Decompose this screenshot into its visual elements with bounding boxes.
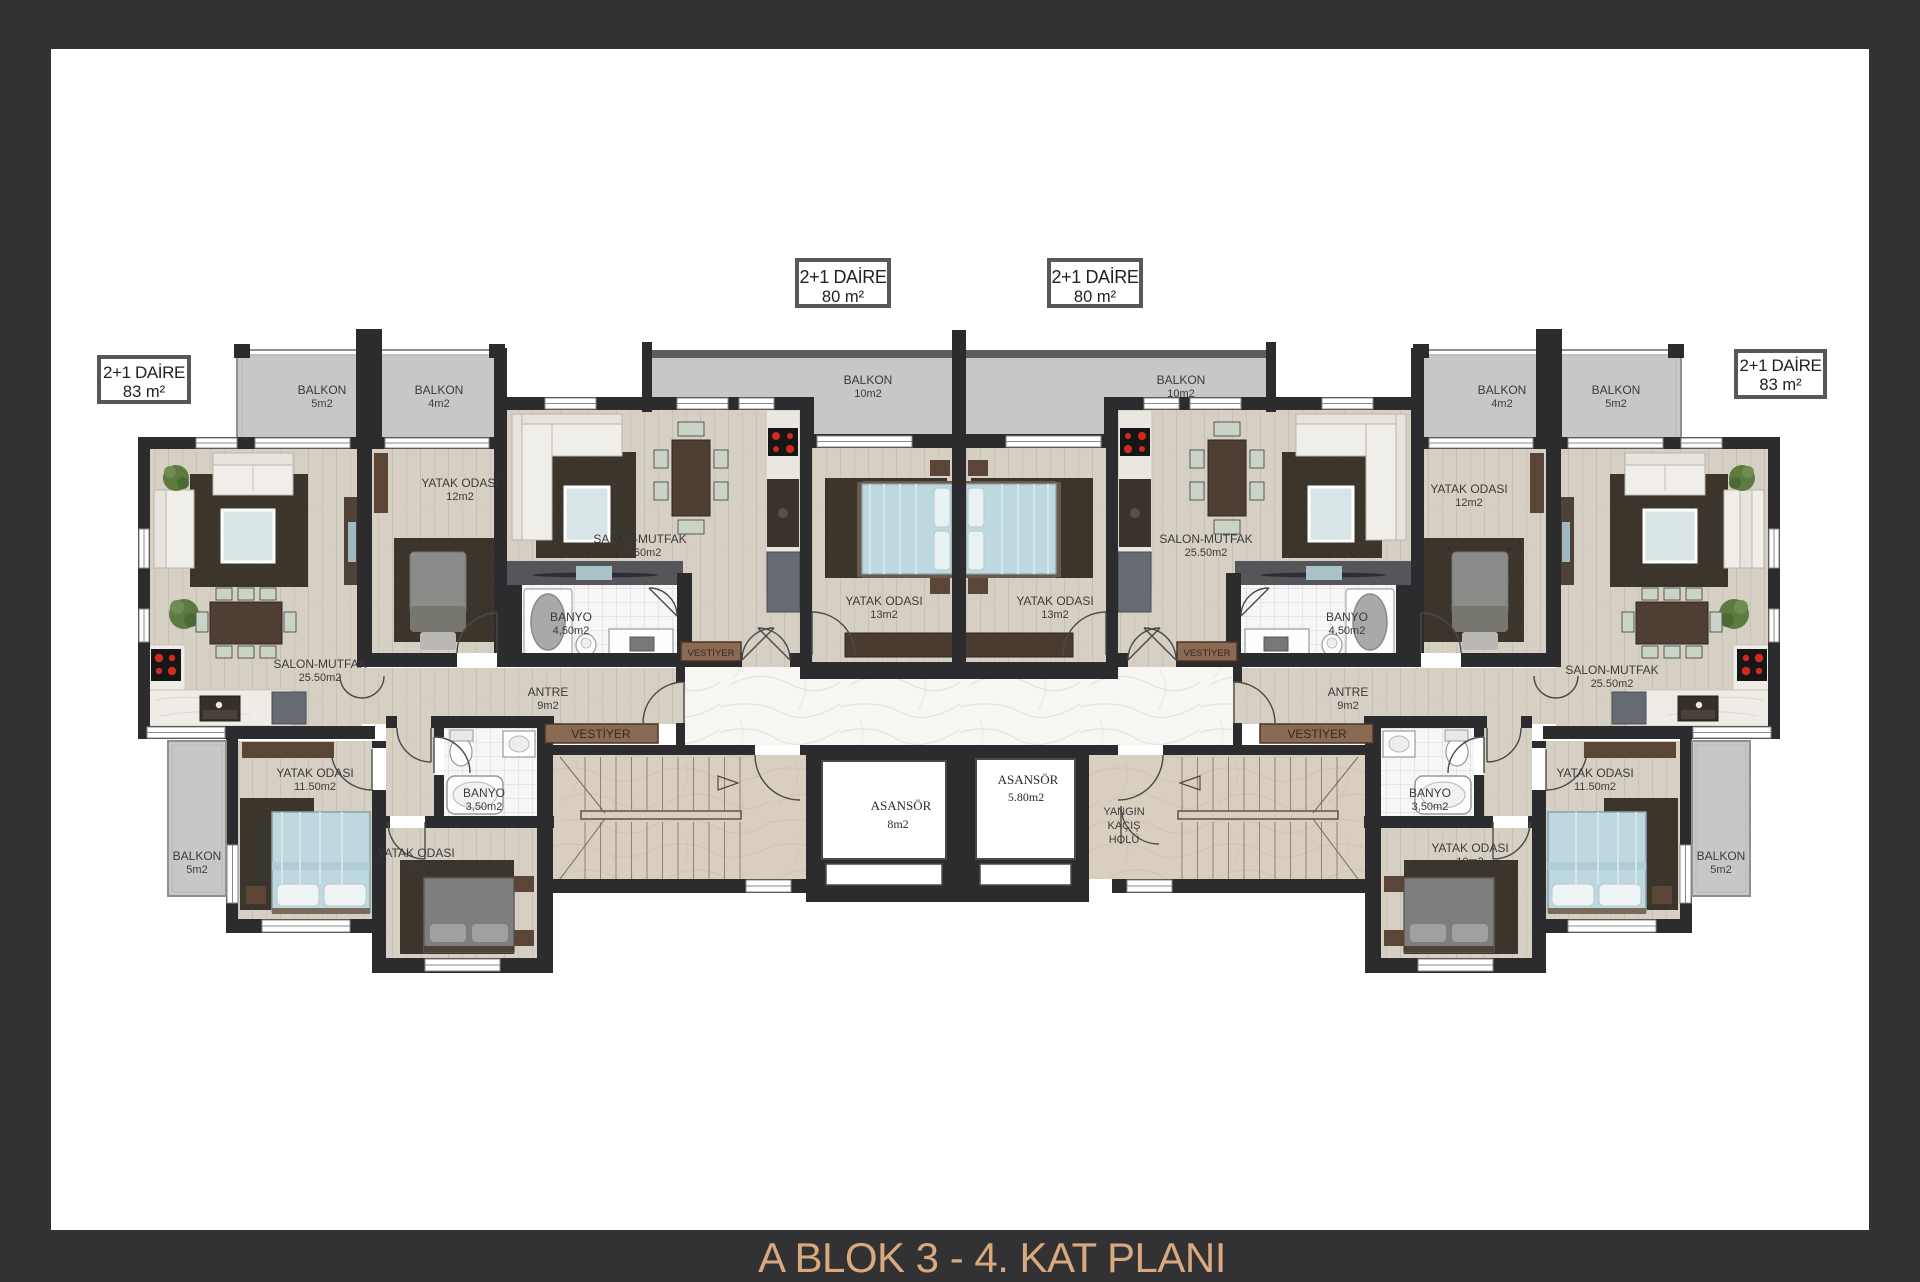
svg-text:5m2: 5m2 — [1605, 398, 1626, 410]
svg-text:ASANSÖR: ASANSÖR — [871, 798, 932, 813]
svg-text:25.50m2: 25.50m2 — [619, 547, 662, 559]
svg-text:13m2: 13m2 — [870, 609, 898, 621]
svg-text:5m2: 5m2 — [186, 864, 207, 876]
svg-text:BALKON: BALKON — [173, 849, 222, 863]
svg-text:VESTİYER: VESTİYER — [571, 727, 631, 741]
svg-text:BANYO: BANYO — [463, 786, 505, 800]
svg-text:25.50m2: 25.50m2 — [1591, 678, 1634, 690]
svg-text:YATAK ODASI: YATAK ODASI — [276, 766, 353, 780]
svg-text:BALKON: BALKON — [1157, 373, 1206, 387]
svg-text:YATAK ODASI: YATAK ODASI — [1431, 841, 1508, 855]
svg-text:12m2: 12m2 — [1455, 497, 1483, 509]
svg-text:ANTRE: ANTRE — [528, 685, 569, 699]
svg-text:9m2: 9m2 — [537, 700, 558, 712]
svg-text:YATAK ODASI: YATAK ODASI — [421, 476, 498, 490]
svg-text:BALKON: BALKON — [1697, 849, 1746, 863]
svg-text:11.50m2: 11.50m2 — [1574, 781, 1616, 793]
svg-text:BALKON: BALKON — [844, 373, 893, 387]
svg-text:5m2: 5m2 — [311, 398, 332, 410]
svg-text:10m2: 10m2 — [1167, 388, 1195, 400]
svg-text:3,50m2: 3,50m2 — [466, 801, 503, 813]
svg-text:YATAK ODASI: YATAK ODASI — [1556, 766, 1633, 780]
svg-text:11.50m2: 11.50m2 — [294, 781, 336, 793]
svg-text:80 m²: 80 m² — [822, 288, 865, 306]
svg-text:BALKON: BALKON — [1592, 383, 1641, 397]
svg-text:SALON-MUTFAK: SALON-MUTFAK — [273, 657, 366, 671]
svg-text:HOLÜ: HOLÜ — [1109, 834, 1140, 846]
svg-text:KAÇIŞ: KAÇIŞ — [1107, 820, 1140, 832]
svg-text:10m2: 10m2 — [1456, 856, 1484, 868]
svg-text:YATAK ODASI: YATAK ODASI — [377, 846, 454, 860]
svg-text:10m2: 10m2 — [402, 861, 430, 873]
svg-text:25.50m2: 25.50m2 — [1185, 547, 1228, 559]
svg-text:83 m²: 83 m² — [123, 383, 166, 401]
svg-text:VESTİYER: VESTİYER — [1287, 727, 1347, 741]
svg-text:BANYO: BANYO — [1409, 786, 1451, 800]
svg-text:4m2: 4m2 — [1491, 398, 1512, 410]
svg-text:2+1 DAİRE: 2+1 DAİRE — [1740, 356, 1822, 375]
svg-text:9m2: 9m2 — [1337, 700, 1358, 712]
svg-text:BANYO: BANYO — [1326, 610, 1368, 624]
svg-text:3,50m2: 3,50m2 — [1412, 801, 1449, 813]
svg-text:YATAK ODASI: YATAK ODASI — [1430, 482, 1507, 496]
svg-text:2+1 DAİRE: 2+1 DAİRE — [800, 267, 887, 287]
svg-text:2+1 DAİRE: 2+1 DAİRE — [103, 363, 185, 382]
svg-text:VESTİYER: VESTİYER — [1184, 648, 1231, 659]
svg-text:8m2: 8m2 — [887, 817, 908, 831]
svg-text:YANGIN: YANGIN — [1103, 806, 1144, 818]
svg-text:VESTİYER: VESTİYER — [688, 648, 735, 659]
svg-text:SALON-MUTFAK: SALON-MUTFAK — [593, 532, 686, 546]
svg-text:YATAK ODASI: YATAK ODASI — [845, 594, 922, 608]
svg-text:83 m²: 83 m² — [1759, 376, 1802, 394]
svg-text:2+1 DAİRE: 2+1 DAİRE — [1052, 267, 1139, 287]
svg-text:80 m²: 80 m² — [1074, 288, 1117, 306]
svg-text:4,50m2: 4,50m2 — [553, 625, 590, 637]
svg-text:SALON-MUTFAK: SALON-MUTFAK — [1159, 532, 1252, 546]
svg-text:BANYO: BANYO — [550, 610, 592, 624]
svg-text:ANTRE: ANTRE — [1328, 685, 1369, 699]
svg-text:5.80m2: 5.80m2 — [1008, 790, 1044, 804]
svg-text:BALKON: BALKON — [415, 383, 464, 397]
svg-text:5m2: 5m2 — [1710, 864, 1731, 876]
svg-text:ASANSÖR: ASANSÖR — [998, 772, 1059, 787]
svg-text:12m2: 12m2 — [446, 491, 474, 503]
svg-text:4m2: 4m2 — [428, 398, 449, 410]
svg-text:4,50m2: 4,50m2 — [1329, 625, 1366, 637]
svg-text:BALKON: BALKON — [1478, 383, 1527, 397]
svg-text:25.50m2: 25.50m2 — [299, 672, 342, 684]
svg-text:BALKON: BALKON — [298, 383, 347, 397]
svg-text:13m2: 13m2 — [1041, 609, 1069, 621]
svg-text:YATAK ODASI: YATAK ODASI — [1016, 594, 1093, 608]
svg-text:SALON-MUTFAK: SALON-MUTFAK — [1565, 663, 1658, 677]
svg-text:10m2: 10m2 — [854, 388, 882, 400]
